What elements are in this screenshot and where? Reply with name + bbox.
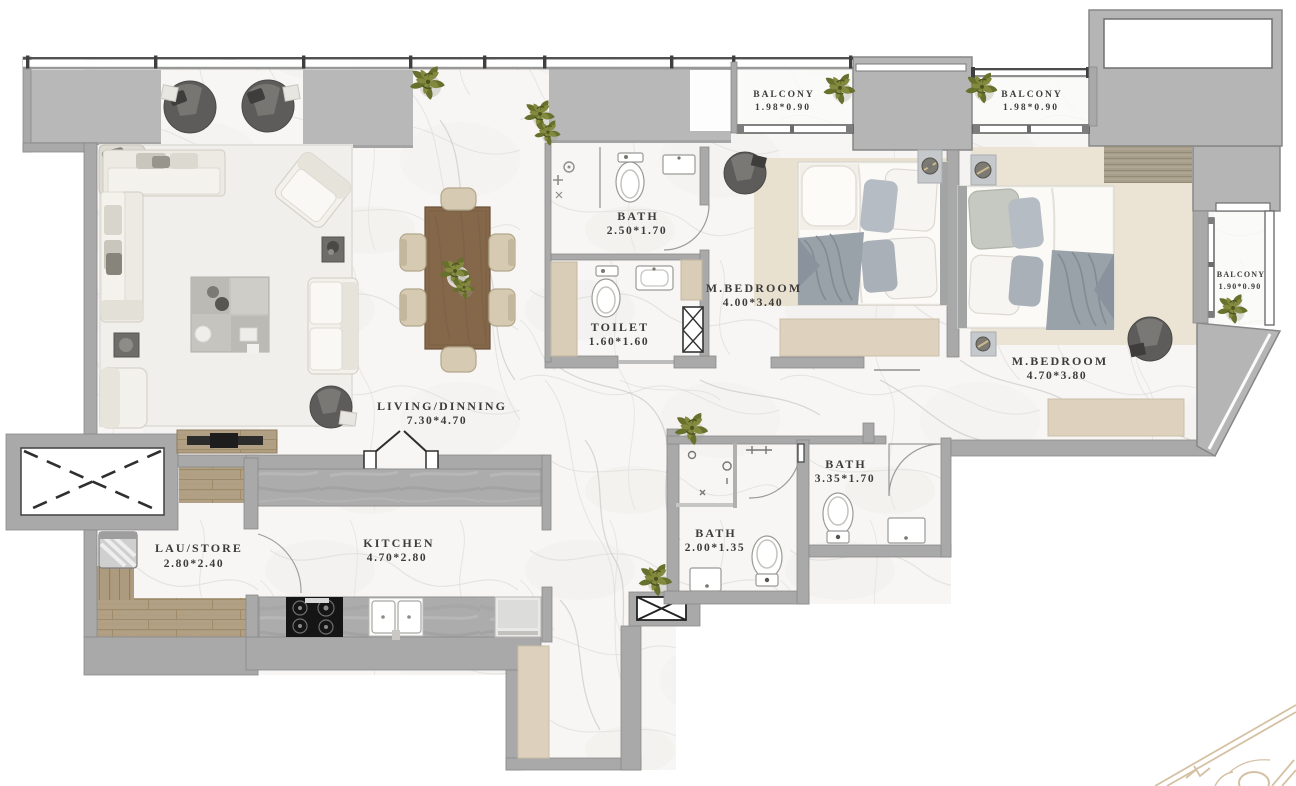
svg-text:3.35*1.70: 3.35*1.70	[815, 473, 875, 485]
svg-text:LIVING/DINNING: LIVING/DINNING	[377, 399, 507, 413]
svg-text:KITCHEN: KITCHEN	[363, 536, 434, 550]
svg-text:1.90*0.90: 1.90*0.90	[1219, 282, 1262, 291]
svg-text:BALCONY: BALCONY	[1217, 270, 1265, 279]
svg-text:M.BEDROOM: M.BEDROOM	[706, 281, 803, 295]
svg-text:BATH: BATH	[617, 209, 659, 223]
svg-text:2.50*1.70: 2.50*1.70	[607, 225, 667, 237]
svg-text:BALCONY: BALCONY	[753, 90, 815, 100]
svg-text:2.00*1.35: 2.00*1.35	[685, 542, 745, 554]
svg-text:4.70*3.80: 4.70*3.80	[1027, 370, 1087, 382]
svg-text:2.80*2.40: 2.80*2.40	[164, 558, 224, 570]
svg-text:7.30*4.70: 7.30*4.70	[407, 415, 467, 427]
svg-text:4.00*3.40: 4.00*3.40	[723, 297, 783, 309]
svg-text:1.98*0.90: 1.98*0.90	[755, 103, 811, 113]
svg-text:BATH: BATH	[825, 457, 867, 471]
svg-text:1.60*1.60: 1.60*1.60	[589, 336, 649, 348]
svg-text:BATH: BATH	[695, 526, 737, 540]
svg-text:BALCONY: BALCONY	[1001, 90, 1063, 100]
svg-text:TOILET: TOILET	[591, 320, 649, 334]
svg-text:1.98*0.90: 1.98*0.90	[1003, 103, 1059, 113]
svg-text:M.BEDROOM: M.BEDROOM	[1012, 354, 1109, 368]
svg-text:4.70*2.80: 4.70*2.80	[367, 552, 427, 564]
svg-text:LAU/STORE: LAU/STORE	[155, 541, 243, 555]
